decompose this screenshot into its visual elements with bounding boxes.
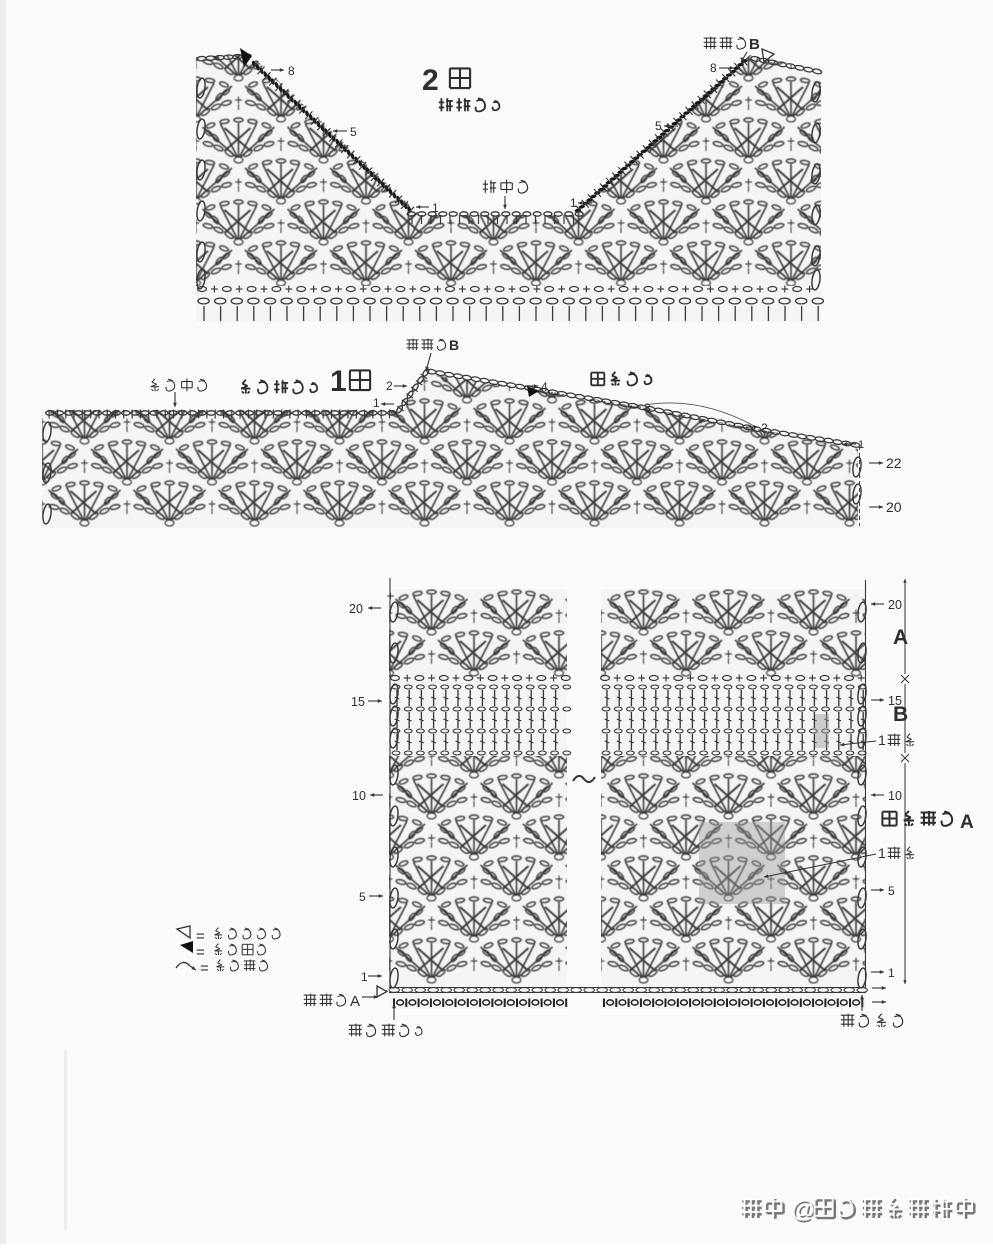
svg-text:1: 1: [878, 732, 886, 748]
svg-text:B: B: [893, 703, 908, 726]
svg-text:20: 20: [349, 602, 363, 616]
svg-text:15: 15: [351, 695, 365, 709]
svg-text:1: 1: [888, 966, 895, 980]
svg-text:10: 10: [888, 789, 902, 803]
svg-text:=: =: [196, 928, 205, 945]
svg-text:2: 2: [422, 64, 439, 97]
svg-text:2: 2: [386, 379, 393, 393]
svg-text:@: @: [791, 1196, 815, 1223]
svg-text:4: 4: [541, 380, 548, 394]
svg-text:8: 8: [288, 64, 295, 78]
svg-text:1: 1: [570, 196, 577, 210]
svg-text:20: 20: [886, 499, 902, 515]
svg-text:5: 5: [655, 119, 662, 133]
svg-text:1: 1: [361, 970, 368, 984]
svg-text:B: B: [749, 36, 760, 53]
svg-text:5: 5: [888, 884, 895, 898]
svg-text:2: 2: [761, 421, 768, 435]
svg-text:A: A: [893, 626, 908, 649]
svg-text:1: 1: [330, 365, 347, 398]
svg-text:10: 10: [352, 789, 366, 803]
svg-text:1: 1: [858, 439, 864, 451]
svg-text:=: =: [196, 944, 205, 961]
svg-text:20: 20: [888, 598, 902, 612]
svg-text:B: B: [449, 337, 459, 353]
svg-text:A: A: [960, 812, 974, 833]
svg-text:8: 8: [710, 61, 717, 75]
svg-text:5: 5: [350, 125, 357, 139]
svg-text:=: =: [200, 960, 209, 977]
svg-text:1: 1: [432, 201, 439, 215]
svg-text:A: A: [350, 993, 360, 1010]
svg-text:1: 1: [878, 845, 886, 861]
svg-text:3: 3: [644, 401, 651, 415]
svg-text:22: 22: [886, 455, 902, 471]
svg-text:5: 5: [359, 890, 366, 904]
svg-text:1: 1: [373, 396, 380, 410]
